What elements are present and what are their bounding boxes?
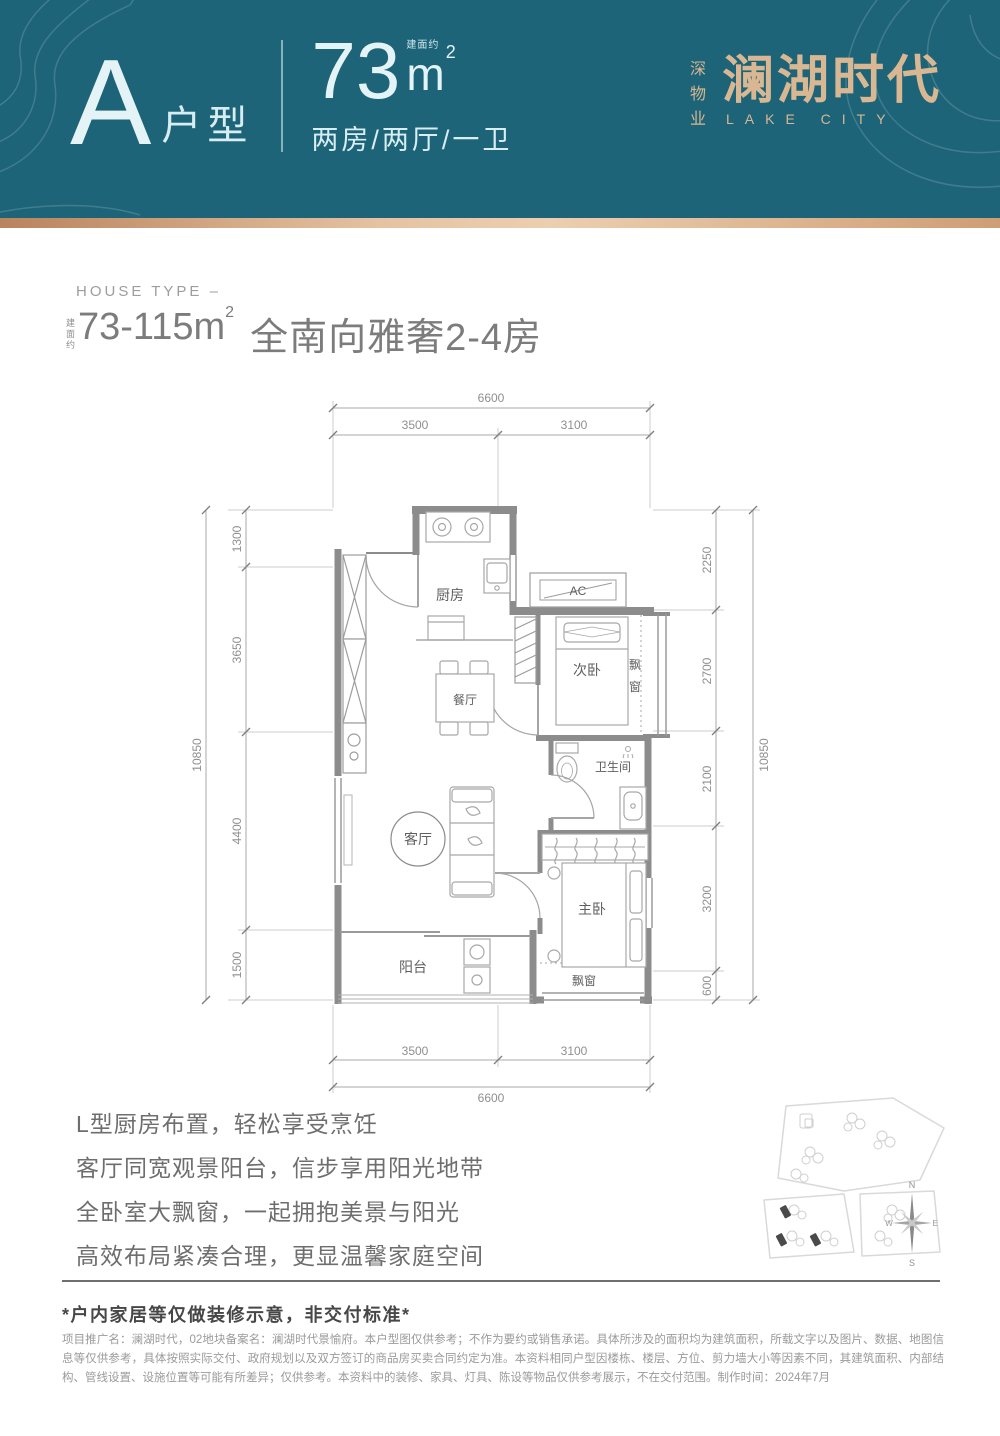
- feature-line-2: 客厅同宽观景阳台，信步享用阳光地带: [76, 1156, 484, 1180]
- dim-left-total: 10850: [190, 738, 204, 772]
- room-label-bay-right-2: 窗: [629, 680, 641, 694]
- wardrobe-master: [542, 834, 648, 864]
- dim-right-seg2: 2700: [700, 657, 714, 684]
- header-divider: [281, 40, 283, 152]
- compass-north: N: [909, 1180, 916, 1190]
- brand-name-en: LAKE CITY: [722, 111, 942, 127]
- brand-name: 澜湖时代: [722, 52, 942, 109]
- washbasin: [620, 787, 646, 829]
- dim-top-seg1: 3500: [402, 418, 429, 432]
- room-label-bay-right-1: 飘: [629, 658, 641, 672]
- dim-right-seg5: 600: [700, 976, 714, 996]
- poster-page: A 户型 73 建面约 m2 两房/两厅/一卫 深物业 澜湖时代 LAKE CI…: [0, 0, 1000, 1436]
- decoration-notice: *户内家居等仅做装修示意，非交付标准*: [62, 1301, 411, 1327]
- header-banner: A 户型 73 建面约 m2 两房/两厅/一卫 深物业 澜湖时代 LAKE CI…: [0, 0, 1000, 218]
- sofa: [450, 787, 494, 897]
- title-superscript: 2: [225, 304, 234, 322]
- area-superscript: 2: [446, 42, 456, 62]
- room-label-bedroom2: 次卧: [573, 662, 601, 678]
- title-area-range: 73-115m: [78, 306, 225, 349]
- title-headline: 全南向雅奢2-4房: [250, 306, 542, 361]
- feature-line-1: L型厨房布置，轻松享受烹饪: [76, 1112, 484, 1136]
- kitchen-counter: [428, 616, 464, 640]
- dim-left-seg3: 4400: [230, 817, 244, 844]
- stove: [426, 512, 490, 542]
- brand-logo: 深物业 澜湖时代 LAKE CITY: [684, 52, 942, 135]
- floorplan-drawing: 6600 3500 3100 3500 3100 6600 1300 3650 …: [188, 383, 820, 1113]
- room-label-balcony: 阳台: [399, 959, 427, 975]
- dim-right-seg3: 2100: [700, 765, 714, 792]
- toilet: [556, 743, 578, 782]
- dim-left-seg2: 3650: [230, 636, 244, 663]
- room-label-kitchen: 厨房: [436, 587, 464, 603]
- compass-west: W: [885, 1219, 893, 1228]
- room-label-dining: 餐厅: [453, 692, 477, 707]
- title-area-note: 建面约: [66, 318, 76, 350]
- room-label-ac: AC: [570, 584, 587, 598]
- balcony-sink: [464, 939, 490, 993]
- dim-extension-lines: [228, 401, 760, 1093]
- room-label-master: 主卧: [578, 901, 606, 917]
- dim-top-seg2: 3100: [561, 418, 588, 432]
- dim-bottom-seg1: 3500: [402, 1044, 429, 1058]
- feature-list: L型厨房布置，轻松享受烹饪 客厅同宽观景阳台，信步享用阳光地带 全卧室大飘窗，一…: [76, 1112, 484, 1288]
- house-type-suffix: 户型: [161, 93, 253, 151]
- compass-star: [892, 1193, 932, 1253]
- compass-south: S: [909, 1258, 915, 1268]
- brand-vertical-text: 深物业: [684, 60, 708, 135]
- main-title: 建面约 73-115m 2 全南向雅奢2-4房: [66, 306, 542, 361]
- dim-right-seg4: 3200: [700, 885, 714, 912]
- room-label-bathroom: 卫生间: [595, 760, 631, 774]
- ac-closet: AC: [530, 573, 626, 607]
- footer-divider: [62, 1280, 940, 1282]
- dim-left-seg4: 1500: [230, 951, 244, 978]
- feature-line-3: 全卧室大飘窗，一起拥抱美景与阳光: [76, 1200, 484, 1224]
- dim-bottom-seg2: 3100: [561, 1044, 588, 1058]
- layout-text: 两房/两厅/一卫: [311, 118, 512, 157]
- room-label-bay-bottom: 飘窗: [572, 974, 596, 988]
- copper-gradient-bar: [0, 218, 1000, 228]
- house-type-block: A 户型 73 建面约 m2 两房/两厅/一卫: [70, 34, 512, 163]
- feature-line-4: 高效布局紧凑合理，更显温馨家庭空间: [76, 1244, 484, 1268]
- dim-texts: 6600 3500 3100 3500 3100 6600 1300 3650 …: [190, 391, 771, 1105]
- compass-east: E: [932, 1219, 937, 1228]
- area-unit: m2: [406, 51, 454, 97]
- dim-right-seg1: 2250: [700, 546, 714, 573]
- dim-right-total: 10850: [757, 738, 771, 772]
- room-label-living: 客厅: [404, 831, 432, 847]
- house-type-letter: A: [70, 41, 151, 163]
- area-block: 73 建面约 m2 两房/两厅/一卫: [311, 34, 512, 157]
- eyebrow-house-type: HOUSE TYPE –: [76, 283, 221, 300]
- dim-bottom-total: 6600: [478, 1091, 505, 1105]
- legal-disclaimer: 项目推广名：澜湖时代，02地块备案名：澜湖时代景愉府。本户型图仅供参考；不作为要…: [62, 1331, 944, 1388]
- compass-rose: N W E S: [884, 1176, 940, 1270]
- shower-icon: [623, 747, 633, 759]
- area-value: 73: [311, 34, 400, 108]
- dim-left-seg1: 1300: [230, 525, 244, 552]
- dim-top-total: 6600: [478, 391, 505, 405]
